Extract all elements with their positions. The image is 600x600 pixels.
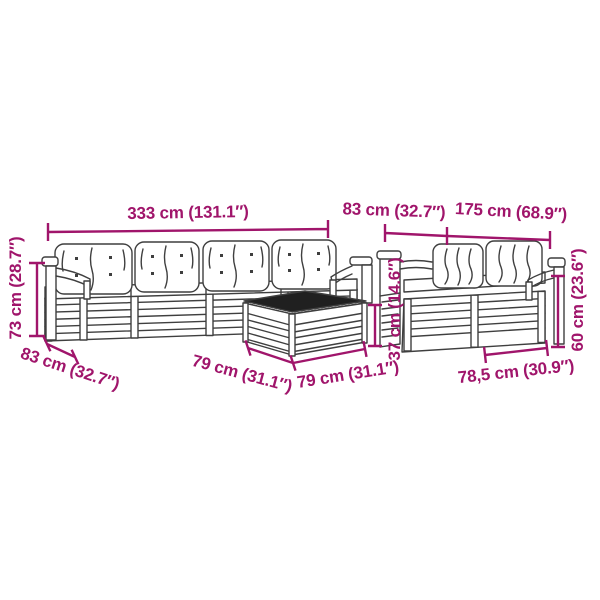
furniture-line-art xyxy=(0,0,600,600)
right-sofa-base xyxy=(402,291,545,352)
right-sofa-back-cushion xyxy=(433,241,542,288)
dim-label-table-height: 37 cm (14.6″) xyxy=(385,229,405,389)
right-sofa xyxy=(402,241,565,352)
back-cushion xyxy=(55,240,336,294)
product-dimension-diagram: 333 cm (131.1″) 83 cm (32.7″) 175 cm (68… xyxy=(0,0,600,600)
dim-label-total-width: 333 cm (131.1″) xyxy=(98,201,278,224)
dim-line-total-width xyxy=(48,220,328,241)
coffee-table xyxy=(243,291,367,356)
dim-line-total-height xyxy=(29,263,45,336)
